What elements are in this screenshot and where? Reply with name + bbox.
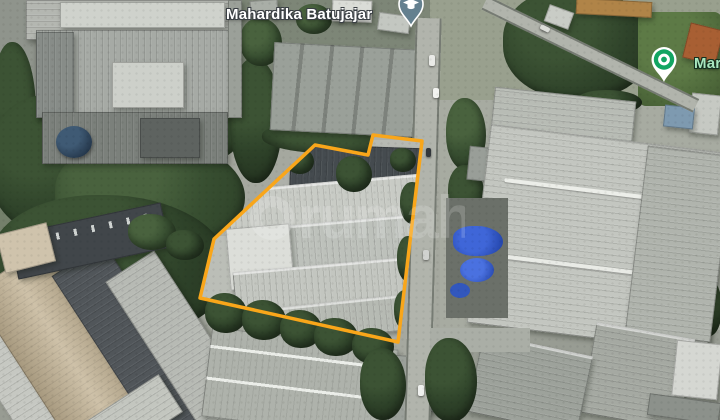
- satellite-map-canvas[interactable]: rumah Mahardika Batujajar Mar: [0, 0, 720, 420]
- vehicle: [433, 88, 439, 98]
- blue-tarp: [460, 258, 494, 282]
- tree-row: [314, 318, 358, 356]
- vehicle: [429, 55, 435, 66]
- factory-roof: [60, 2, 225, 28]
- storage-dome: [56, 126, 92, 158]
- vegetation: [166, 230, 204, 260]
- factory-roof: [36, 32, 74, 118]
- white-roof: [671, 340, 720, 401]
- vehicle: [418, 385, 424, 396]
- blue-tarp: [453, 226, 503, 256]
- vehicle: [426, 148, 431, 157]
- factory-structures: [140, 118, 200, 158]
- tree: [390, 148, 416, 172]
- factory-roof: [112, 62, 184, 108]
- graduation-cap-icon-band: [408, 5, 415, 10]
- map-label-place[interactable]: Mahardika Batujajar: [226, 6, 372, 23]
- tree: [336, 156, 372, 192]
- business-pin[interactable]: [649, 45, 679, 83]
- business-pin-dot: [654, 49, 674, 69]
- tree-row: [242, 300, 286, 340]
- vehicle: [423, 250, 429, 260]
- tree-cluster: [425, 338, 477, 420]
- school-pin[interactable]: [396, 0, 426, 28]
- blue-tarp: [450, 283, 470, 298]
- tree-row: [205, 293, 247, 333]
- warehouse-roof: [270, 42, 424, 138]
- map-label-business-truncated[interactable]: Mar: [694, 55, 720, 72]
- tree-cluster: [360, 348, 406, 420]
